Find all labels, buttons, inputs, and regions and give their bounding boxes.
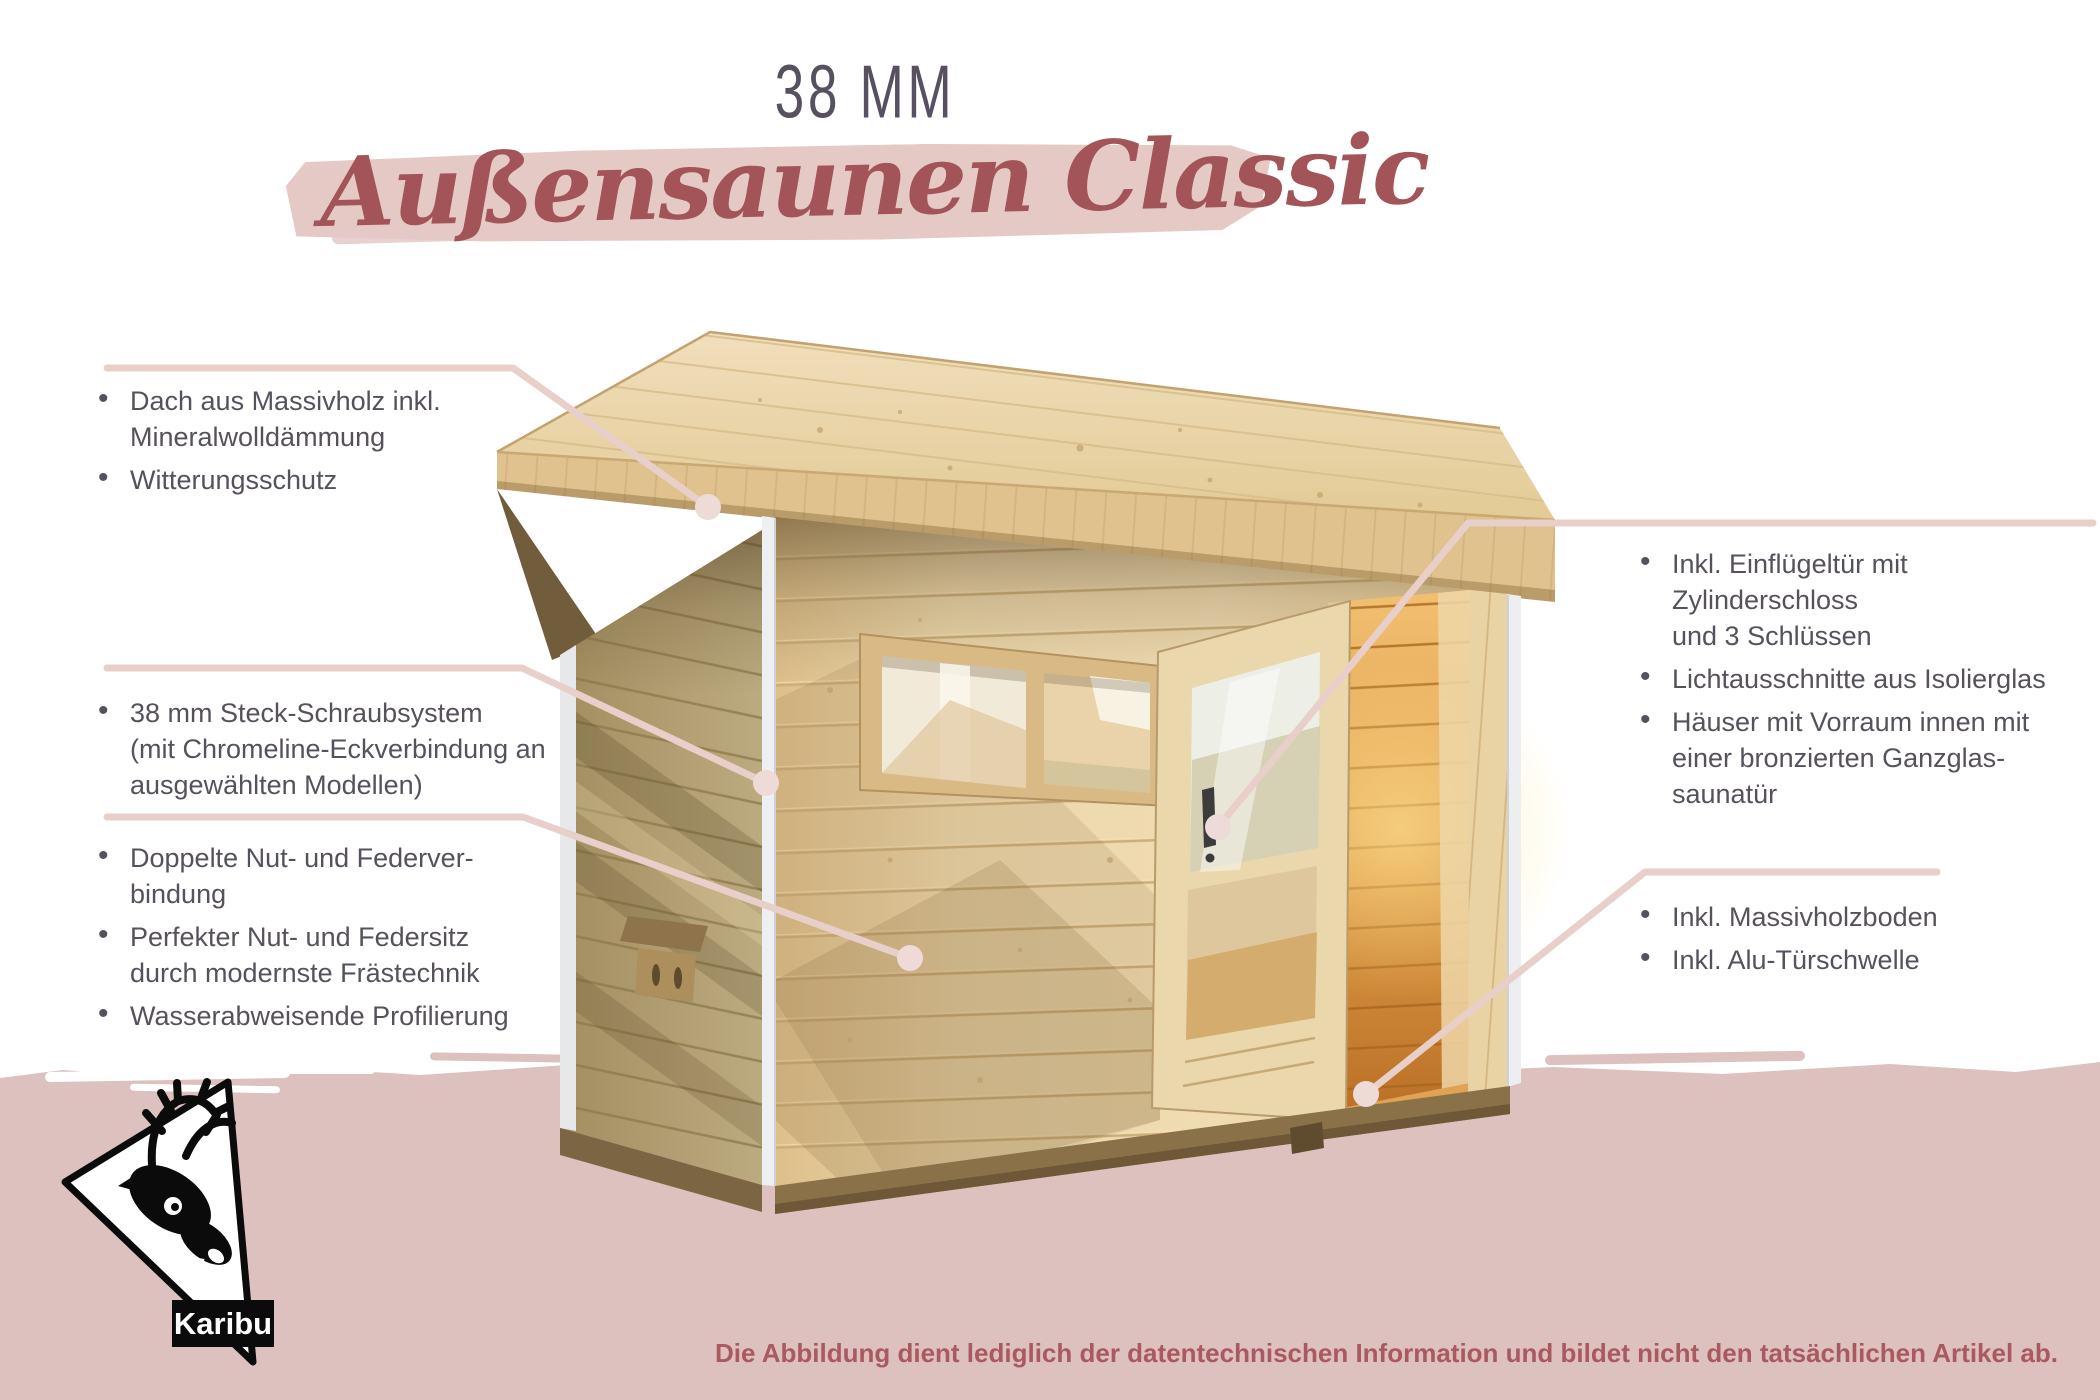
feature-item: Inkl. Einflügeltür mit Zylinderschloss u… xyxy=(1632,546,2092,654)
feature-item: 38 mm Steck-Schraubsystem (mit Chromelin… xyxy=(90,695,550,803)
feature-list-door: Inkl. Einflügeltür mit Zylinderschloss u… xyxy=(1632,546,2092,819)
feature-item: Doppelte Nut- und Federver- bindung xyxy=(90,840,510,912)
disclaimer-text: Die Abbildung dient lediglich der datent… xyxy=(0,1338,2058,1369)
feature-list-roof: Dach aus Massivholz inkl. Mineralwolldäm… xyxy=(90,383,470,505)
feature-item: Witterungsschutz xyxy=(90,462,470,498)
feature-list-floor: Inkl. Massivholzboden Inkl. Alu-Türschwe… xyxy=(1632,899,2052,985)
feature-item: Häuser mit Vorraum innen mit einer bronz… xyxy=(1632,704,2092,812)
feature-item: Lichtausschnitte aus Isolierglas xyxy=(1632,661,2092,697)
feature-item: Inkl. Alu-Türschwelle xyxy=(1632,942,2052,978)
infographic-page: 38 MM Außensaunen Classic xyxy=(0,0,2100,1400)
logo-wordmark: Karibu xyxy=(174,1306,272,1341)
callout-dot-roof xyxy=(695,494,721,520)
feature-item: Dach aus Massivholz inkl. Mineralwolldäm… xyxy=(90,383,470,455)
feature-item: Wasserabweisende Profilierung xyxy=(90,998,510,1034)
feature-item: Perfekter Nut- und Federsitz durch moder… xyxy=(90,919,510,991)
feature-list-walls: 38 mm Steck-Schraubsystem (mit Chromelin… xyxy=(90,695,550,810)
feature-list-joinery: Doppelte Nut- und Federver- bindung Perf… xyxy=(90,840,510,1041)
callout-dot-walls xyxy=(753,770,779,796)
feature-item: Inkl. Massivholzboden xyxy=(1632,899,2052,935)
callout-dot-door xyxy=(1205,814,1231,840)
callout-dot-joinery xyxy=(897,945,923,971)
callout-dot-floor xyxy=(1353,1081,1379,1107)
